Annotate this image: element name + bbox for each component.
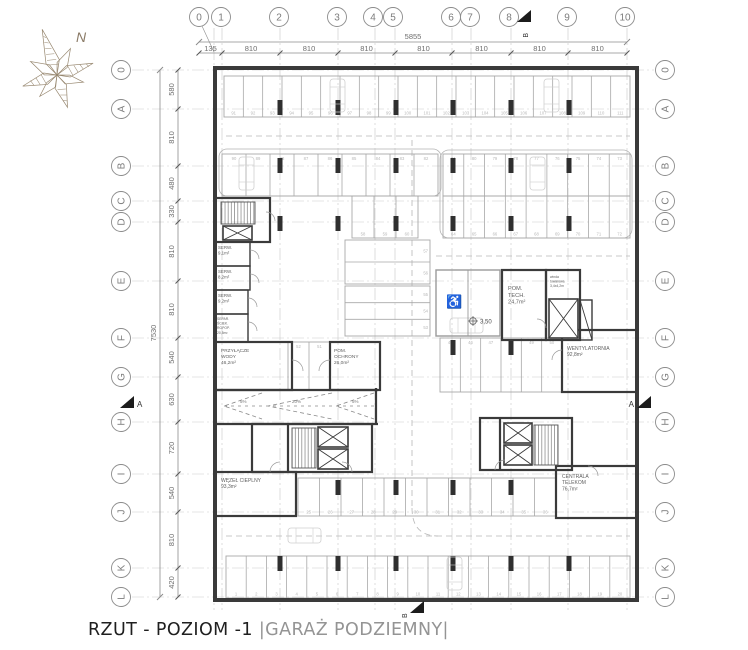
axis-bubbles: 01234567891000AABBCCDDEEFFGGHHIIJJKKLL — [112, 8, 675, 607]
parking-stall-number: 35 — [521, 510, 526, 515]
dimension-label: 810 — [245, 44, 258, 53]
axis-label-left-0: 0 — [117, 67, 128, 73]
structural-column — [451, 158, 456, 173]
structural-column — [509, 216, 514, 231]
structural-column — [567, 100, 572, 115]
room-walls-light — [215, 242, 592, 342]
structural-column — [278, 216, 283, 231]
drawing-title: RZUT - POZIOM -1|GARAŻ PODZIEMNY| — [88, 620, 449, 640]
parking-stall-number: 14 — [496, 592, 501, 597]
axis-label-right-I: I — [661, 473, 672, 476]
parking-stall-number: 104 — [482, 111, 490, 116]
axis-label-right-C: C — [661, 197, 672, 204]
axis-label-right-0: 0 — [661, 67, 672, 73]
structural-column — [278, 158, 283, 173]
dimension-label: 330 — [167, 205, 176, 218]
parking-stall-number: 70 — [576, 232, 581, 237]
structural-column — [451, 100, 456, 115]
dimension-label: 810 — [167, 534, 176, 547]
dimension-label: 810 — [167, 303, 176, 316]
car-icon — [288, 528, 321, 543]
structural-column — [567, 556, 572, 571]
parking-stall-number: 87 — [304, 156, 309, 161]
axis-label-top-5: 5 — [390, 13, 396, 24]
parking-row-row_mid_small: 585960 — [352, 196, 418, 238]
parking-stall-number: 36 — [543, 510, 548, 515]
dimension-label: 810 — [417, 44, 430, 53]
parking-stall-number: 100 — [404, 111, 412, 116]
axis-label-left-C: C — [117, 197, 128, 204]
parking-stall-number: 4 — [296, 592, 299, 597]
parking-stall-number: 98 — [367, 111, 372, 116]
parking-stall-number: 99 — [386, 111, 391, 116]
elevator-shafts — [223, 226, 578, 469]
parking-stall-number: 17 — [557, 592, 562, 597]
axis-label-right-F: F — [661, 335, 672, 341]
ramp: 5% 20% 5% — [224, 393, 374, 419]
structural-column — [394, 556, 399, 571]
parking-stall-number: 107 — [540, 111, 548, 116]
parking-stall-number: 5 — [316, 592, 319, 597]
room-label-ochrona: POM.OCHRONY26,0m² — [334, 348, 359, 366]
parking-stall-number: 86 — [328, 156, 333, 161]
room-label-serw1: SERW.9,1m² — [218, 245, 232, 256]
parking-stall-number: 34 — [500, 510, 505, 515]
parking-stall-number: 56 — [423, 271, 428, 276]
parking-stall-number: 8 — [376, 592, 379, 597]
parking-stall-number: 59 — [383, 232, 388, 237]
parking-stall-number: 93 — [270, 111, 275, 116]
axis-label-left-G: G — [117, 373, 128, 381]
parking-row-stack_lower: 555453 — [345, 286, 430, 336]
car-icon — [530, 157, 545, 190]
axis-label-right-H: H — [661, 418, 672, 425]
parking-row-row_ef: 454647484950 — [440, 338, 562, 392]
parking-stall-number: 85 — [352, 156, 357, 161]
axis-label-left-A: A — [117, 105, 128, 112]
axis-label-left-I: I — [117, 473, 128, 476]
parking-stall-number: 105 — [501, 111, 509, 116]
room-label-wezel: WĘZEŁ CIEPLNY93,3m² — [221, 478, 262, 490]
parking-stall-number: 69 — [555, 232, 560, 237]
parking-stall-number: 92 — [251, 111, 256, 116]
parking-stall-number: 31 — [435, 510, 440, 515]
section-marker-a-left: A — [137, 400, 143, 409]
axis-label-right-J: J — [661, 510, 672, 515]
parking-stall-number: 55 — [423, 292, 428, 297]
axis-label-top-7: 7 — [467, 13, 473, 24]
section-marker-a-right: A — [629, 400, 635, 409]
axis-label-left-L: L — [117, 594, 128, 600]
parking-stall-number: 106 — [520, 111, 528, 116]
parking-stall-number: 95 — [309, 111, 314, 116]
dimension-label: 135 — [204, 44, 217, 53]
structural-column — [336, 100, 341, 115]
car-icon — [239, 157, 254, 190]
parking-stall-number: 109 — [578, 111, 586, 116]
parking-stall-number: 78 — [513, 156, 518, 161]
structural-column — [394, 100, 399, 115]
axis-label-top-2: 2 — [276, 13, 282, 24]
car-icon — [450, 318, 483, 333]
axis-label-right-D: D — [661, 218, 672, 225]
dimension-label: 810 — [591, 44, 604, 53]
axis-label-right-G: G — [661, 373, 672, 381]
structural-column — [451, 480, 456, 495]
axis-label-top-1: 1 — [218, 13, 224, 24]
structural-column — [509, 100, 514, 115]
dimension-label: 810 — [167, 245, 176, 258]
parking-stall-number: 7 — [356, 592, 359, 597]
svg-text:3,50: 3,50 — [480, 320, 492, 326]
structural-column — [509, 480, 514, 495]
parking-stall-number: 68 — [534, 232, 539, 237]
parking-stall-number: 47 — [488, 340, 493, 345]
parking-stall-number: 110 — [598, 111, 605, 116]
parking-stall-number: 32 — [457, 510, 462, 515]
parking-stall-number: 29 — [392, 510, 397, 515]
parking-stall-number: 54 — [423, 309, 428, 314]
parking-stall-number: 89 — [256, 156, 261, 161]
ramp-slope-label: 20% — [292, 399, 301, 404]
parking-stall-number: 58 — [361, 232, 366, 237]
dimension-label: 480 — [167, 177, 176, 190]
parking-stall-number: 108 — [559, 111, 567, 116]
parking-stall-number: 28 — [371, 510, 376, 515]
parking-stall-number: 13 — [476, 592, 481, 597]
structural-column — [567, 158, 572, 173]
axis-label-left-H: H — [117, 418, 128, 425]
parking-stall-number: 10 — [416, 592, 421, 597]
parking-stall-number: 90 — [232, 156, 237, 161]
level-marker: 3,50 — [468, 316, 492, 326]
axis-label-top-10: 10 — [619, 13, 631, 24]
axis-label-left-F: F — [117, 335, 128, 341]
axis-label-left-J: J — [117, 510, 128, 515]
parking-row-stack_upper: 5756 — [345, 240, 430, 284]
car-icon — [544, 79, 559, 112]
structural-column — [394, 158, 399, 173]
axis-label-right-E: E — [661, 277, 672, 284]
compass-icon: N — [8, 18, 104, 119]
dimension-label: 540 — [167, 487, 176, 500]
structural-column — [451, 340, 456, 355]
dimension-label: 540 — [167, 351, 176, 364]
parking-stall-number: 15 — [517, 592, 522, 597]
parking-stall-number: 84 — [376, 156, 381, 161]
room-label-went: WENTYLATORNIA92,8m² — [567, 346, 610, 358]
structural-column — [509, 340, 514, 355]
structural-column — [567, 216, 572, 231]
parking-stall-number: 101 — [424, 111, 432, 116]
parking-stall-number: 72 — [617, 232, 622, 237]
title-main: RZUT - POZIOM -1 — [88, 620, 253, 640]
parking-stall-number: 102 — [443, 111, 451, 116]
structural-column — [451, 216, 456, 231]
axis-label-right-L: L — [661, 594, 672, 600]
axis-label-top-0: 0 — [196, 13, 202, 24]
parking-stall-number: 57 — [423, 249, 428, 254]
axis-label-right-A: A — [661, 105, 672, 112]
parking-stall-number: 9 — [397, 592, 400, 597]
dimension-label: 810 — [533, 44, 546, 53]
dimension-label: 420 — [167, 576, 176, 589]
section-marker-b-top: B — [523, 33, 530, 38]
parking-stall-number: 91 — [231, 111, 236, 116]
parking-stall-number: 20 — [618, 592, 623, 597]
dimension-label: 810 — [303, 44, 316, 53]
axis-label-left-D: D — [117, 218, 128, 225]
parking-stall-number: 73 — [617, 156, 622, 161]
floor-plan-sheet: 5855 7530 135810810810810810810810580810… — [0, 0, 748, 650]
parking-stall-number: 67 — [513, 232, 518, 237]
dimension-label: 810 — [475, 44, 488, 53]
structural-column — [394, 216, 399, 231]
parking-stall-number: 12 — [456, 592, 461, 597]
parking-stall-number: 26 — [328, 510, 333, 515]
dimension-label: 720 — [167, 442, 176, 455]
floor-plan-canvas: 5855 7530 135810810810810810810810580810… — [0, 0, 748, 650]
structural-column — [509, 158, 514, 173]
dimension-total-side: 7530 — [149, 325, 158, 342]
dimension-label: 810 — [167, 131, 176, 144]
axis-label-top-9: 9 — [564, 13, 570, 24]
structural-column — [336, 480, 341, 495]
axis-label-left-E: E — [117, 277, 128, 284]
axis-label-top-8: 8 — [506, 13, 512, 24]
parking-stall-number: 76 — [555, 156, 560, 161]
room-label-separ: SEPAR.ŚCIEK.ROPOP.20,5m² — [217, 317, 230, 335]
parking-stall-number: 16 — [537, 592, 542, 597]
axis-label-right-B: B — [661, 162, 672, 169]
parking-stall-number: 75 — [576, 156, 581, 161]
parking-stall-number: 74 — [596, 156, 601, 161]
structural-column — [509, 556, 514, 571]
compass-north-label: N — [76, 29, 87, 45]
parking-stall-number: 97 — [347, 111, 352, 116]
structural-column — [394, 480, 399, 495]
parking-stall-number: 79 — [493, 156, 498, 161]
parking-stall-number: 66 — [493, 232, 498, 237]
dimension-label: 810 — [360, 44, 373, 53]
parking-stall-number: 83 — [400, 156, 405, 161]
parking-stall-number: 94 — [289, 111, 294, 116]
room-label-serw2: SERW.8,2m² — [218, 269, 232, 280]
axis-label-top-3: 3 — [334, 13, 340, 24]
parking-stall-number: 111 — [617, 111, 624, 116]
parking-stall-number: 30 — [414, 510, 419, 515]
parking-stall-number: 2 — [255, 592, 258, 597]
parking-stall-number: 33 — [478, 510, 483, 515]
dimension-label: 630 — [167, 393, 176, 406]
room-label-winda: windatowarowa3,4x4,2m — [550, 275, 565, 288]
structural-column — [278, 556, 283, 571]
axis-label-left-B: B — [117, 162, 128, 169]
parking-stall-number: 60 — [405, 232, 410, 237]
parking-stall-number: 64 — [451, 232, 456, 237]
section-marker-b-bottom: B — [402, 613, 409, 618]
structural-column — [336, 556, 341, 571]
axis-label-top-4: 4 — [370, 13, 376, 24]
dimension-total-top: 5855 — [405, 32, 422, 41]
parking-stall-number: 82 — [424, 156, 429, 161]
parking-stall-number: 1 — [235, 592, 238, 597]
parking-stall-number: 18 — [577, 592, 582, 597]
axis-label-right-K: K — [661, 564, 672, 571]
parking-stall-number: 71 — [596, 232, 601, 237]
parking-stall-number: 80 — [472, 156, 477, 161]
ramp-slope-label: 5% — [352, 399, 359, 404]
room-label-woda: PRZYŁĄCZEWODY46,2m² — [221, 348, 249, 366]
parking-stall-number: 103 — [462, 111, 470, 116]
structural-column — [451, 556, 456, 571]
parking-row-pair_51_52: 5251 — [288, 342, 330, 390]
parking-stall-number: 19 — [597, 592, 602, 597]
axis-label-top-6: 6 — [448, 13, 454, 24]
parking-stall-number: 46 — [468, 340, 473, 345]
ramp-slope-label: 5% — [240, 399, 247, 404]
parking-stall-number: 6 — [336, 592, 339, 597]
structural-column — [336, 158, 341, 173]
parking-stall-number: 3 — [275, 592, 278, 597]
parking-stall-number: 25 — [306, 510, 311, 515]
parking-stall-number: 51 — [317, 344, 322, 349]
room-label-serw3: SERW.9,2m² — [218, 293, 232, 304]
dimension-label: 580 — [167, 83, 176, 96]
title-secondary: |GARAŻ PODZIEMNY| — [259, 620, 449, 640]
parking-stall-number: 65 — [472, 232, 477, 237]
room-label-tech: POM.TECH.24,7m² — [508, 286, 526, 306]
structural-columns — [278, 100, 572, 571]
parking-stall-number: 27 — [349, 510, 354, 515]
parking-stall-number: 52 — [296, 344, 301, 349]
room-label-telekom: CENTRALATELEKOM76,7m² — [562, 474, 589, 492]
structural-column — [278, 100, 283, 115]
parking-stall-number: 53 — [423, 325, 428, 330]
parking-stall-number: 11 — [436, 592, 441, 597]
axis-label-left-K: K — [117, 564, 128, 571]
structural-column — [336, 216, 341, 231]
wheelchair-icon: ♿ — [446, 294, 462, 309]
